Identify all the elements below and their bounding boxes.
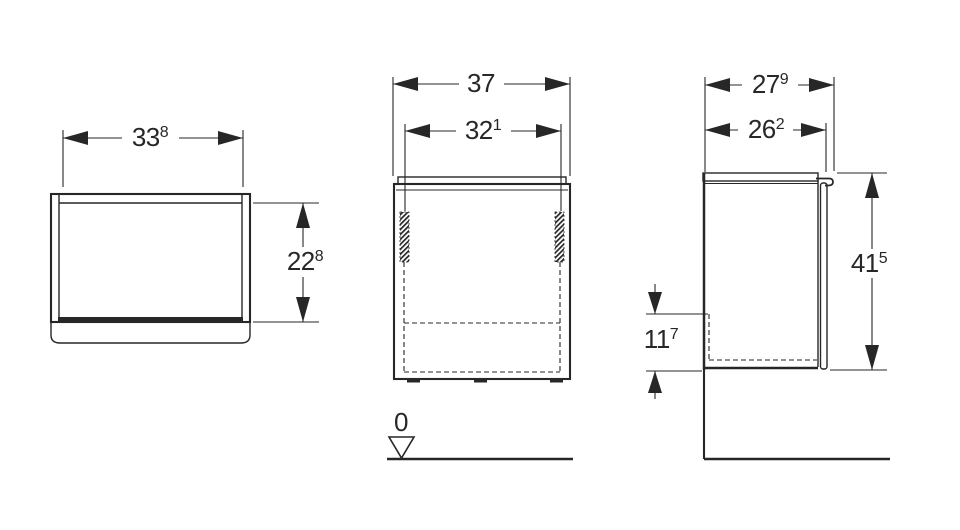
foot-right (550, 379, 563, 383)
hanger-bracket-right (555, 212, 564, 262)
front-bottom-panel (58, 317, 243, 322)
arrowhead-right-icon (801, 123, 826, 137)
arrowhead-left-icon (405, 124, 430, 138)
arrowhead-right-icon (809, 78, 834, 92)
cabinet-dimension-drawing: 338 228 (0, 0, 960, 530)
arrowhead-left-icon (705, 123, 730, 137)
arrowhead-left-icon (705, 78, 730, 92)
foot-center (474, 379, 487, 383)
side-bottom-clearance-label: 117 (644, 324, 679, 354)
center-cabinet-body (394, 184, 570, 379)
front-plinth (51, 322, 250, 343)
arrowhead-up-icon (648, 371, 662, 393)
arrowhead-up-icon (865, 173, 879, 198)
floor-datum: 0 (387, 407, 573, 459)
center-overall-width-label: 37 (467, 68, 495, 98)
arrowhead-left-icon (393, 77, 418, 91)
side-view: 279 262 415 117 (644, 69, 897, 459)
hanger-bracket-left (400, 212, 409, 262)
side-bottom-clearance-dimension: 117 (644, 284, 708, 399)
arrowhead-right-icon (218, 131, 243, 145)
door-profile (821, 183, 828, 369)
technical-drawing-page: 338 228 (0, 0, 960, 530)
arrowhead-down-icon (296, 297, 310, 322)
front-height-dimension: 228 (253, 203, 334, 322)
foot-left (407, 379, 420, 383)
arrowhead-right-icon (545, 77, 570, 91)
arrowhead-left-icon (63, 131, 88, 145)
side-body-depth-dimension: 262 (705, 114, 826, 172)
datum-triangle-icon (389, 437, 414, 458)
front-width-dimension: 338 (63, 122, 243, 187)
side-top-panel (703, 173, 818, 181)
side-height-dimension: 415 (830, 173, 897, 370)
arrowhead-down-icon (865, 345, 879, 370)
arrowhead-right-icon (536, 124, 561, 138)
arrowhead-up-icon (296, 203, 310, 228)
front-view: 338 228 (51, 122, 334, 343)
floor-datum-label: 0 (394, 407, 408, 437)
front-cabinet-body (51, 194, 250, 322)
center-inner-width-dimension: 321 (405, 115, 561, 211)
arrowhead-down-icon (648, 292, 662, 314)
center-view: 37 321 0 (387, 68, 573, 459)
